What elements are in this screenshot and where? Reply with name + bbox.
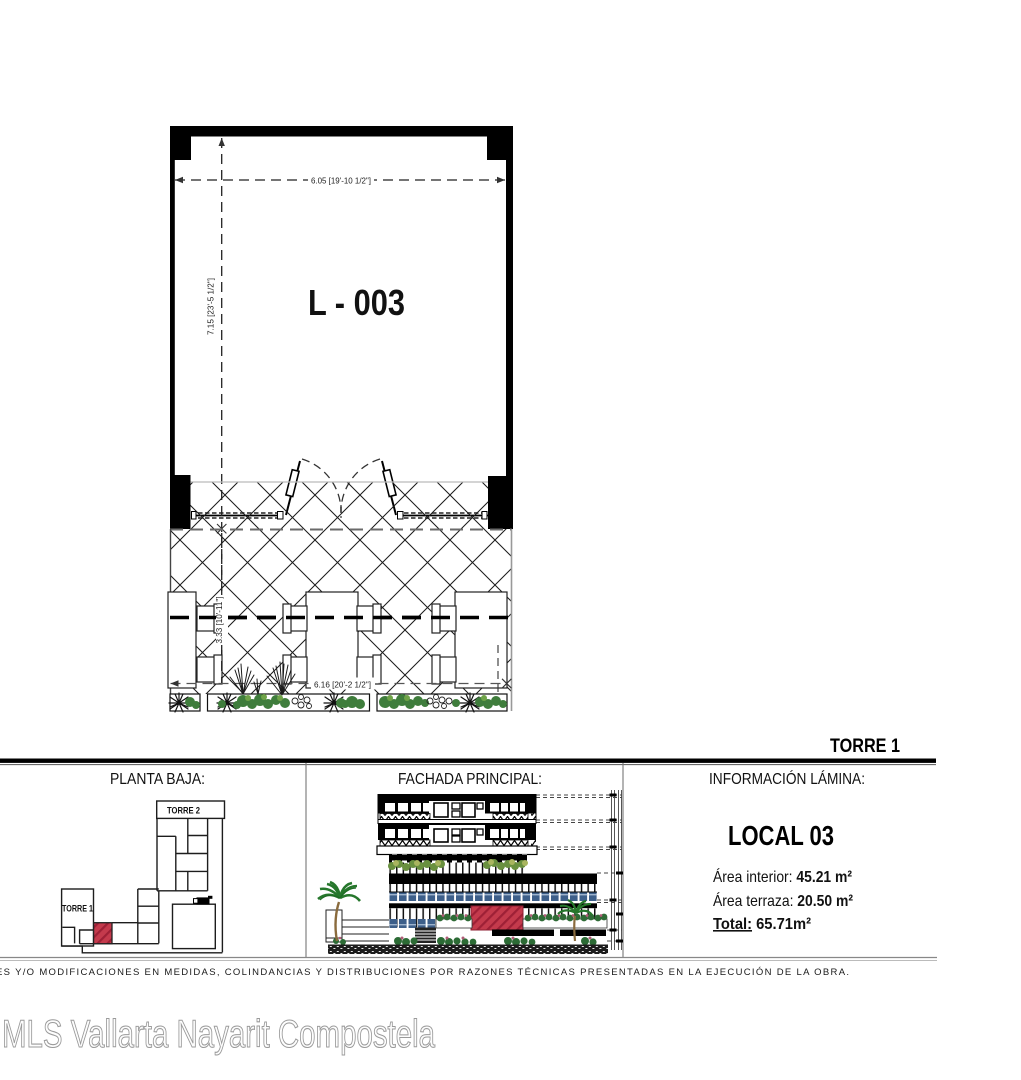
svg-text:PLANTA BAJA:: PLANTA BAJA: — [110, 771, 205, 788]
svg-text:TORRE 1: TORRE 1 — [830, 735, 900, 757]
svg-text:Área interior: 45.21 m²: Área interior: 45.21 m² — [713, 867, 852, 886]
svg-text:INFORMACIÓN LÁMINA:: INFORMACIÓN LÁMINA: — [709, 769, 865, 788]
svg-text:Área terraza: 20.50 m²: Área terraza: 20.50 m² — [713, 891, 853, 910]
svg-text:7.15 [23'-5 1/2"]: 7.15 [23'-5 1/2"] — [206, 278, 216, 335]
svg-text:FACHADA PRINCIPAL:: FACHADA PRINCIPAL: — [398, 771, 542, 788]
svg-text:TORRE 2: TORRE 2 — [167, 806, 200, 816]
svg-text:LOCAL 03: LOCAL 03 — [728, 820, 834, 851]
svg-text:Total: 65.71m²: Total: 65.71m² — [713, 916, 811, 933]
svg-text:TORRE 1: TORRE 1 — [62, 904, 93, 914]
svg-text:L - 003: L - 003 — [308, 282, 405, 323]
svg-text:6.05 [19'-10 1/2"]: 6.05 [19'-10 1/2"] — [311, 176, 371, 186]
svg-text:ES Y/O MODIFICACIONES EN MEDID: ES Y/O MODIFICACIONES EN MEDIDAS, COLIND… — [0, 967, 849, 978]
svg-text:6.16 [20'-2 1/2"]: 6.16 [20'-2 1/2"] — [314, 680, 371, 690]
svg-text:MLS Vallarta Nayarit Compostel: MLS Vallarta Nayarit Compostela — [2, 1013, 435, 1056]
svg-text:3.33 [10'-11"]: 3.33 [10'-11"] — [214, 597, 224, 644]
